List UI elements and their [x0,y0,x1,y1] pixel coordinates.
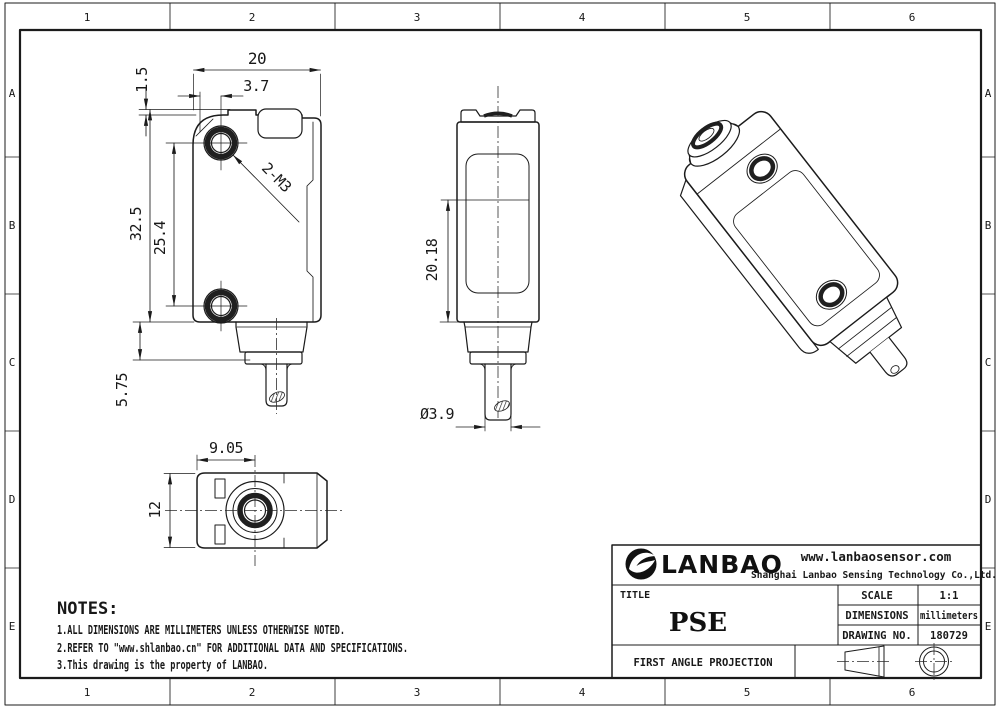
row-label: C [9,356,16,369]
dim-cable-diameter: Ø3.9 [420,405,455,423]
projection-label: FIRST ANGLE PROJECTION [633,657,772,669]
cable-break-mark [493,399,511,414]
col-label: 3 [414,11,421,24]
front-hole-bottom [166,281,247,331]
col-label: 3 [414,686,421,699]
row-label: A [985,87,992,100]
row-label: E [985,620,992,633]
bottom-dimensions: 9.05 12 [146,439,255,548]
dim-depth: 12 [146,501,164,518]
dim-hole-offset: 3.7 [243,77,269,95]
side-panel [466,154,529,293]
front-cable-gland [236,318,307,414]
cable-break-mark [268,390,286,405]
front-connector-tab [258,109,302,138]
spec-label-scale: SCALE [861,590,893,602]
side-dimensions: 20.18 Ø3.9 [420,200,540,431]
front-view: 20 3.7 1.5 32.5 25.4 5.75 2-M3 [113,49,321,414]
col-label: 5 [744,11,751,24]
row-label: B [9,219,16,232]
drawing-title: PSE [669,608,727,638]
note-item: 2.REFER TO "www.shlanbao.cn" FOR ADDITIO… [57,641,408,655]
front-side-groove [307,122,313,322]
bottom-view: 9.05 12 [146,439,345,566]
bottom-slot-top [215,479,225,498]
spec-value-dimensions: millimeters [920,610,978,622]
dim-body-height: 32.5 [127,207,145,241]
row-label: D [985,493,992,506]
first-angle-projection-icon [837,643,953,680]
row-label: C [985,356,992,369]
row-label: A [9,87,16,100]
cad-drawing: 1 2 3 4 5 6 1 2 3 4 5 6 A B C D E A B C … [0,0,1000,708]
col-label: 1 [84,11,91,24]
notes-heading: NOTES: [57,599,118,619]
title-label: TITLE [620,590,650,601]
company-name: Shanghai Lanbao Sensing Technology Co.,L… [751,570,997,581]
isometric-view [657,92,944,412]
col-label: 4 [579,11,586,24]
drawing-sheet: 1 2 3 4 5 6 1 2 3 4 5 6 A B C D E A B C … [0,0,1000,708]
col-label: 2 [249,686,256,699]
front-dimensions: 20 3.7 1.5 32.5 25.4 5.75 2-M3 [113,49,321,407]
spec-label-drawing-no: DRAWING NO. [842,630,912,642]
dim-gland-height: 5.75 [113,373,131,407]
note-item: 3.This drawing is the property of LANBAO… [57,658,268,672]
col-label: 6 [909,11,916,24]
dim-lip-height: 1.5 [133,67,151,93]
website: www.lanbaosensor.com [801,549,952,564]
row-label: B [985,219,992,232]
col-label: 1 [84,686,91,699]
title-block: LANBAO www.lanbaosensor.com Shanghai Lan… [612,545,997,680]
dim-lens-offset: 9.05 [209,439,243,457]
row-label: D [9,493,16,506]
front-hole-top [166,96,247,170]
side-view: 20.18 Ø3.9 [420,86,540,431]
brand-logo [626,549,657,580]
dim-optical-height: 20.18 [423,238,441,281]
dim-thread-callout: 2-M3 [258,159,295,196]
row-label: E [9,620,16,633]
note-item: 1.ALL DIMENSIONS ARE MILLIMETERS UNLESS … [57,623,345,637]
col-label: 5 [744,686,751,699]
col-label: 4 [579,686,586,699]
dim-hole-pitch: 25.4 [151,220,169,255]
spec-value-drawing-no: 180729 [930,630,968,642]
spec-label-dimensions: DIMENSIONS [845,610,908,622]
dim-width: 20 [248,49,266,68]
front-body-outline [193,110,321,322]
bottom-slot-bottom [215,525,225,544]
col-label: 6 [909,686,916,699]
notes: NOTES: 1.ALL DIMENSIONS ARE MILLIMETERS … [57,599,408,672]
spec-value-scale: 1:1 [940,590,959,602]
col-label: 2 [249,11,256,24]
